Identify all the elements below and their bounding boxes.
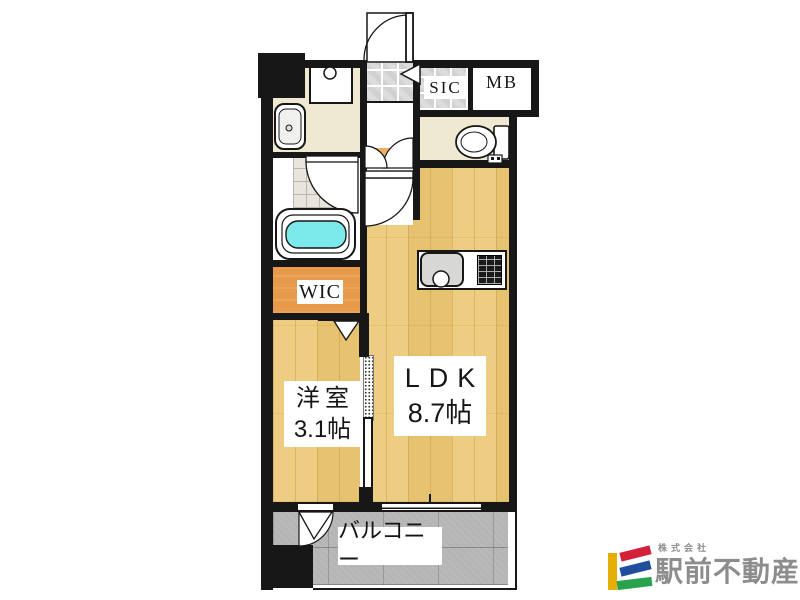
washbasin-icon	[275, 104, 305, 149]
kitchen-sink-icon	[421, 253, 463, 287]
western-room-label: 洋室 3.1帖	[284, 381, 361, 447]
washing-machine-dial-icon	[324, 67, 336, 79]
hall-door-swings	[365, 138, 413, 168]
logo-bar-blue-icon	[619, 560, 651, 576]
ldk-name: LDK	[405, 361, 485, 396]
balcony-label-text: バルコニー	[338, 517, 442, 574]
mb-label-text: MB	[486, 71, 518, 94]
folding-closet-door-icon	[334, 321, 359, 340]
wic-label-text: WIC	[299, 279, 341, 305]
bathroom-door-icon	[306, 156, 358, 213]
ldk-label: LDK 8.7帖	[394, 356, 486, 436]
western-room-name: 洋室	[296, 383, 354, 414]
ldk-door-icon	[365, 171, 413, 226]
logo-bar-red-icon	[619, 545, 651, 561]
sic-label-text: SIC	[429, 77, 461, 99]
bathtub-icon	[276, 209, 355, 259]
logo-bar-yellow-icon	[608, 553, 617, 590]
logo-bar-green-icon	[617, 577, 653, 590]
sic-label: SIC	[424, 77, 467, 99]
mb-label: MB	[473, 63, 531, 103]
western-room-size: 3.1帖	[294, 414, 351, 445]
floor-plan-canvas: SIC MB WIC LDK 8.7帖 洋室 3.1帖 バルコニー 株式会社 駅…	[0, 0, 800, 600]
ldk-size: 8.7帖	[408, 396, 473, 431]
fixture-overlay	[0, 0, 800, 600]
company-name-text: 駅前不動産	[655, 556, 800, 587]
balcony-label: バルコニー	[338, 527, 442, 565]
balcony-door-icon	[299, 512, 333, 546]
company-name: 駅前不動産	[655, 550, 800, 590]
wic-label: WIC	[297, 280, 343, 304]
toilet-icon	[456, 126, 509, 163]
shoe-closet-door-icon	[401, 64, 420, 84]
company-logo: 株式会社 駅前不動産	[603, 536, 800, 594]
entrance-door-icon	[364, 13, 413, 62]
